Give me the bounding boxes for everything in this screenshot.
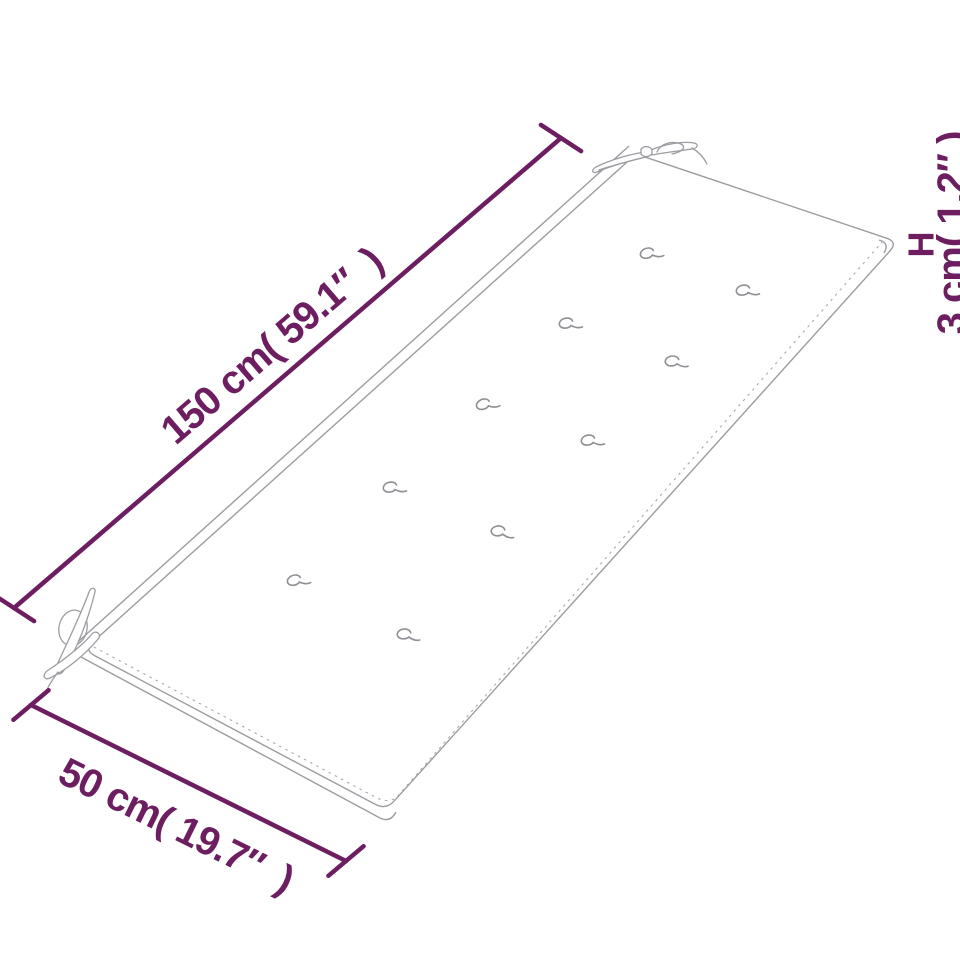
cushion-top-face (89, 157, 893, 807)
length-end-tick-bottom (0, 595, 34, 621)
tie-straps-left-corner (44, 588, 99, 695)
height-axis-label: H (901, 233, 942, 258)
tie-tail-right (692, 148, 707, 164)
width-end-tick-right (328, 846, 363, 876)
product-dimension-diagram: 150 cm( 59.1″ ) 50 cm( 19.7″ ) 3 cm( 1.2… (0, 0, 960, 960)
width-dimension-label: 50 cm( 19.7″ ) (52, 750, 300, 903)
dimension-height: 3 cm( 1.2″ ) H (901, 132, 960, 335)
diagram-svg: 150 cm( 59.1″ ) 50 cm( 19.7″ ) 3 cm( 1.2… (0, 0, 960, 960)
width-end-tick-left (13, 690, 48, 720)
tie-knot-top (641, 147, 652, 157)
cushion (75, 146, 893, 820)
